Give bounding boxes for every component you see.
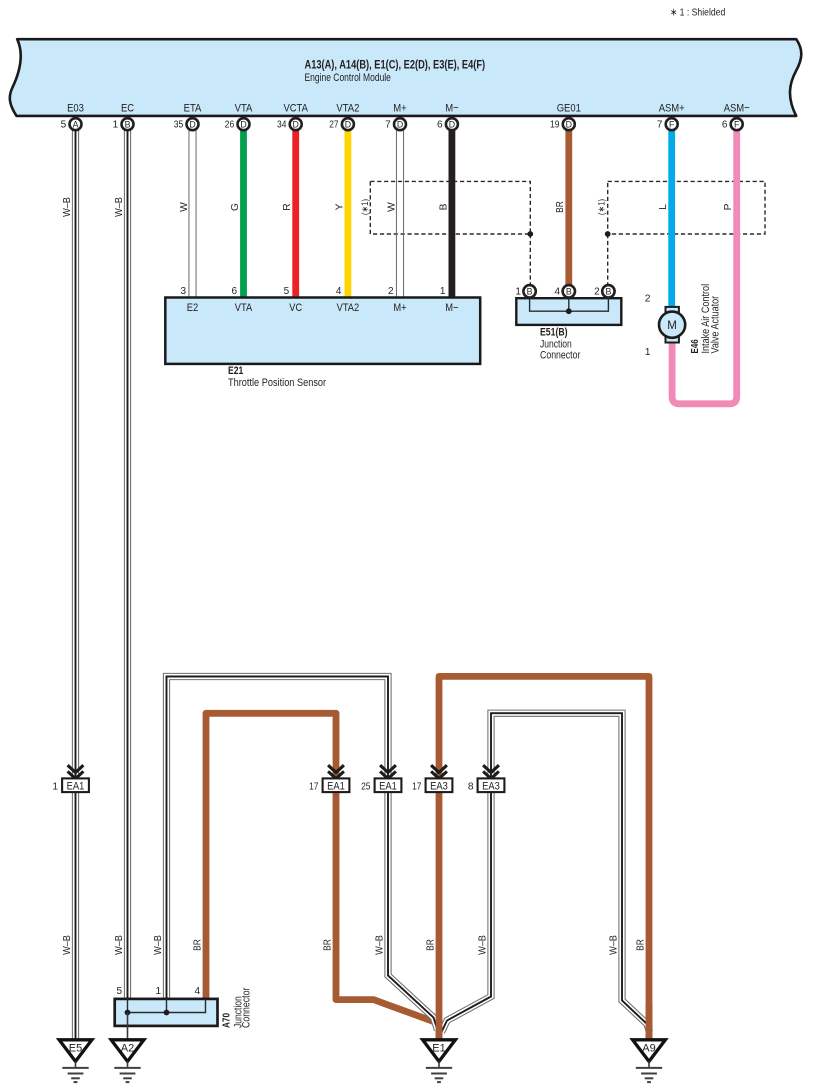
svg-text:EC: EC: [121, 102, 134, 114]
svg-text:W–B: W–B: [374, 935, 385, 955]
svg-text:ASM−: ASM−: [724, 102, 750, 114]
svg-text:1: 1: [515, 287, 521, 298]
svg-text:BR: BR: [192, 939, 203, 951]
svg-text:ETA: ETA: [184, 102, 202, 114]
svg-text:R: R: [282, 203, 293, 210]
svg-text:19: 19: [550, 120, 560, 131]
svg-text:BR: BR: [322, 939, 333, 951]
svg-text:5: 5: [116, 986, 122, 997]
svg-text:M−: M−: [445, 302, 458, 314]
svg-text:D: D: [345, 119, 351, 129]
svg-text:E21: E21: [228, 365, 243, 377]
svg-text:W–B: W–B: [477, 935, 488, 955]
svg-text:EA1: EA1: [327, 780, 345, 792]
svg-text:6: 6: [437, 120, 443, 131]
svg-text:VTA: VTA: [235, 102, 253, 114]
svg-text:Connector: Connector: [241, 987, 253, 1028]
svg-text:(∗1): (∗1): [359, 199, 370, 215]
svg-text:Connector: Connector: [540, 350, 581, 362]
svg-text:D: D: [240, 119, 246, 129]
svg-text:D: D: [293, 119, 299, 129]
svg-text:6: 6: [231, 286, 237, 297]
svg-text:A2: A2: [121, 1042, 134, 1054]
svg-text:2: 2: [645, 294, 651, 305]
svg-text:EA1: EA1: [379, 780, 397, 792]
svg-text:M−: M−: [445, 102, 459, 114]
svg-text:M+: M+: [393, 102, 407, 114]
svg-text:F: F: [734, 119, 740, 129]
svg-text:A13(A), A14(B), E1(C), E2(D),: A13(A), A14(B), E1(C), E2(D), E3(E), E4(…: [305, 58, 486, 72]
svg-text:E5: E5: [69, 1042, 82, 1054]
svg-text:Throttle Position Sensor: Throttle Position Sensor: [228, 377, 326, 389]
svg-text:VC: VC: [289, 302, 302, 314]
svg-text:ASM+: ASM+: [659, 102, 685, 114]
svg-text:EA1: EA1: [67, 780, 85, 792]
svg-text:26: 26: [225, 120, 235, 131]
svg-text:1: 1: [113, 120, 119, 131]
svg-text:E2: E2: [187, 302, 198, 314]
svg-text:∗ 1 : Shielded: ∗ 1 : Shielded: [670, 8, 726, 19]
svg-text:4: 4: [336, 286, 342, 297]
svg-text:BR: BR: [425, 939, 436, 951]
svg-text:8: 8: [468, 781, 474, 792]
svg-text:7: 7: [385, 120, 391, 131]
svg-text:6: 6: [722, 120, 728, 131]
svg-text:M+: M+: [393, 302, 406, 314]
svg-text:1: 1: [52, 781, 58, 792]
svg-text:M: M: [667, 320, 677, 332]
svg-text:17: 17: [412, 781, 422, 792]
svg-text:W–B: W–B: [153, 935, 164, 955]
svg-text:D: D: [397, 119, 403, 129]
svg-text:A: A: [73, 119, 79, 129]
svg-text:E51(B): E51(B): [540, 327, 568, 339]
svg-text:W: W: [386, 202, 397, 212]
svg-text:G: G: [230, 203, 241, 211]
svg-text:A70: A70: [221, 1013, 232, 1028]
svg-text:(∗1): (∗1): [595, 199, 606, 215]
svg-text:A9: A9: [642, 1042, 655, 1054]
svg-text:3: 3: [180, 286, 186, 297]
svg-text:4: 4: [194, 986, 200, 997]
svg-text:B: B: [566, 286, 572, 296]
svg-text:B: B: [527, 286, 533, 296]
svg-text:F: F: [669, 119, 675, 129]
svg-text:1: 1: [645, 347, 651, 358]
svg-text:W: W: [179, 202, 190, 212]
svg-text:25: 25: [361, 781, 371, 792]
svg-text:GE01: GE01: [557, 102, 581, 114]
svg-text:5: 5: [61, 120, 67, 131]
svg-text:VCTA: VCTA: [283, 102, 308, 114]
svg-text:W–B: W–B: [62, 197, 73, 217]
svg-text:Y: Y: [334, 203, 345, 210]
svg-text:BR: BR: [635, 939, 646, 951]
svg-text:L: L: [658, 204, 669, 210]
svg-text:EA3: EA3: [482, 780, 500, 792]
svg-text:P: P: [723, 203, 734, 210]
svg-text:W–B: W–B: [114, 935, 125, 955]
svg-text:27: 27: [329, 120, 339, 131]
svg-text:VTA: VTA: [235, 302, 253, 314]
svg-text:B: B: [605, 286, 611, 296]
svg-text:VTA2: VTA2: [337, 302, 360, 314]
svg-text:4: 4: [555, 287, 561, 298]
svg-text:2: 2: [388, 286, 394, 297]
svg-text:E1: E1: [432, 1042, 445, 1054]
svg-text:W–B: W–B: [114, 197, 125, 217]
svg-text:2: 2: [594, 287, 600, 298]
svg-text:D: D: [449, 119, 455, 129]
svg-text:E03: E03: [67, 102, 84, 114]
svg-text:1: 1: [155, 986, 161, 997]
svg-text:BR: BR: [555, 201, 566, 213]
svg-text:B: B: [438, 203, 449, 210]
svg-text:1: 1: [440, 286, 446, 297]
svg-text:5: 5: [284, 286, 290, 297]
svg-text:W–B: W–B: [62, 935, 73, 955]
svg-text:D: D: [189, 119, 195, 129]
svg-text:17: 17: [309, 781, 319, 792]
svg-text:B: B: [125, 119, 131, 129]
svg-text:Valve Actuator: Valve Actuator: [710, 295, 722, 353]
svg-text:Engine Control Module: Engine Control Module: [305, 72, 391, 84]
svg-text:35: 35: [174, 120, 184, 131]
svg-text:7: 7: [657, 120, 663, 131]
svg-text:VTA2: VTA2: [336, 102, 359, 114]
svg-text:34: 34: [277, 120, 287, 131]
svg-text:W–B: W–B: [608, 935, 619, 955]
svg-text:EA3: EA3: [430, 780, 448, 792]
svg-text:D: D: [566, 119, 572, 129]
